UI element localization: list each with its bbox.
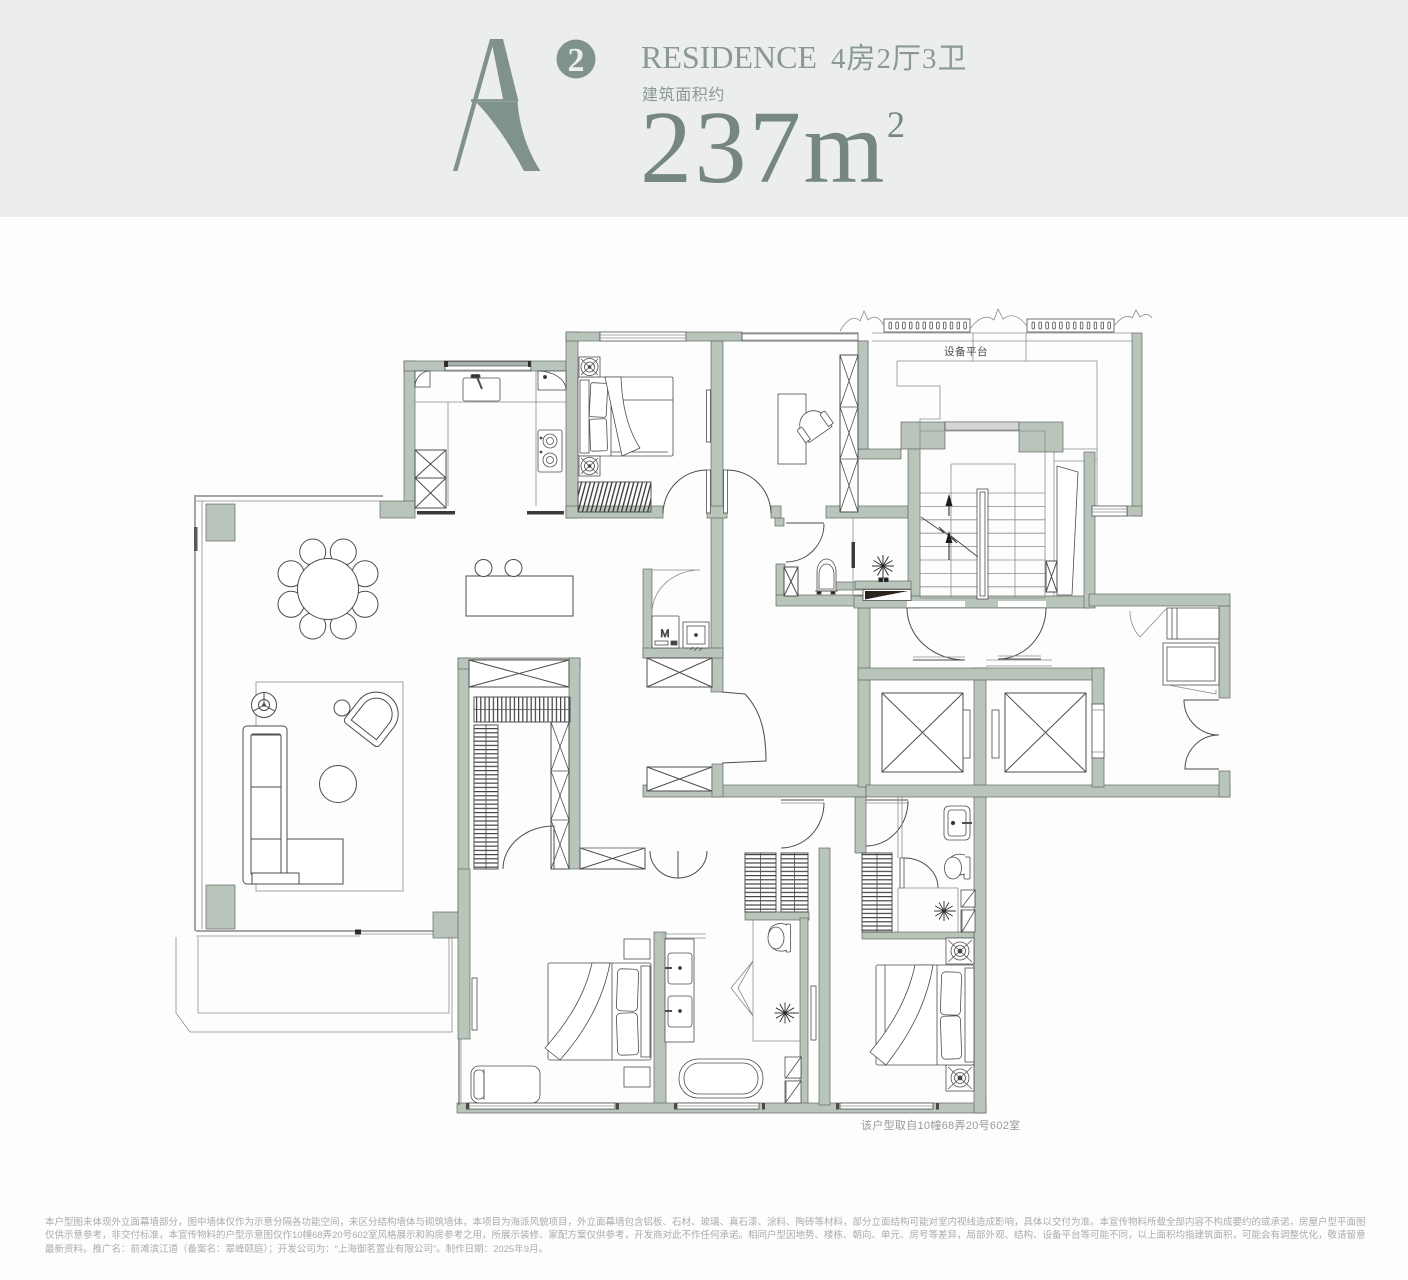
svg-text:设备平台: 设备平台 — [944, 345, 988, 358]
svg-text:M: M — [660, 628, 669, 640]
